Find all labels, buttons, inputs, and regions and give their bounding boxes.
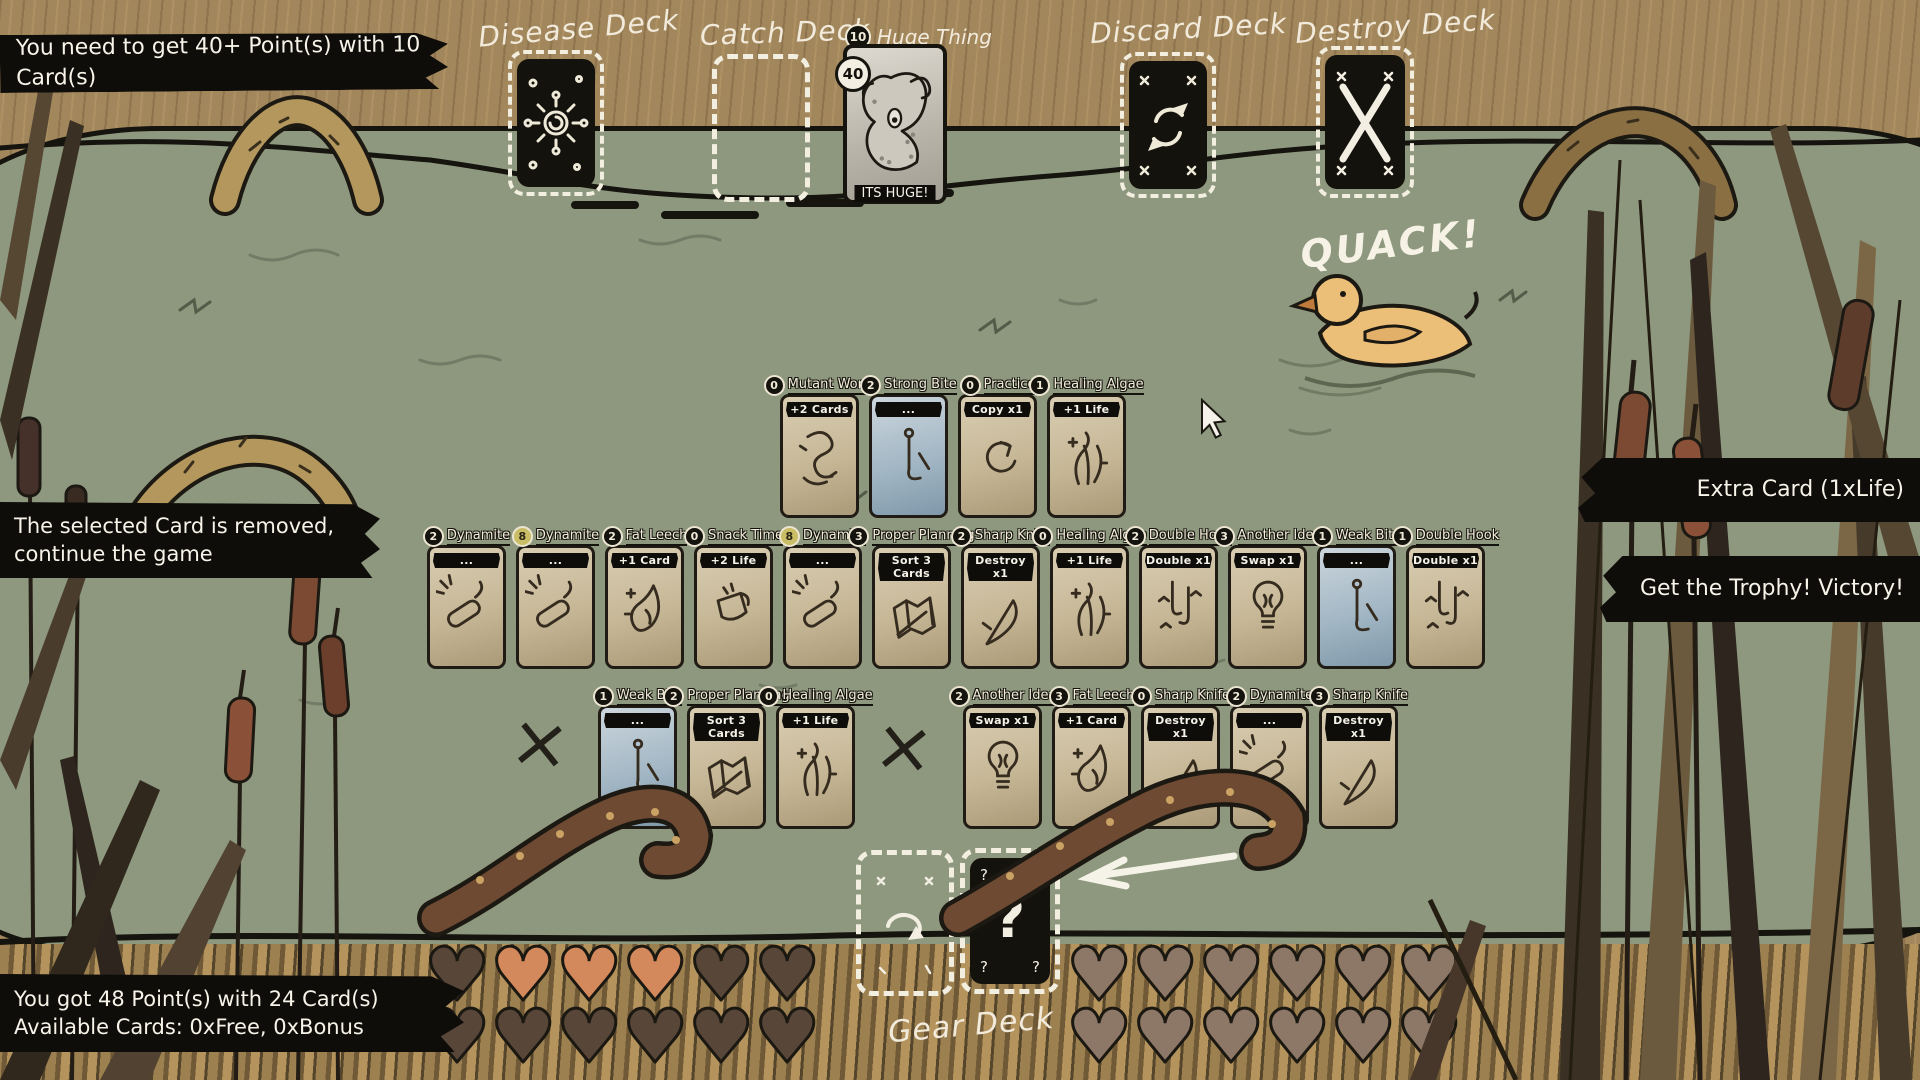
card-value-badge: 2	[1125, 526, 1146, 547]
card-effect: Double x1	[1145, 553, 1212, 568]
card-value-badge: 3	[848, 526, 869, 547]
card-dynamite[interactable]: 2Dynamite...	[1230, 705, 1309, 829]
destroy-deck-label: Destroy Deck	[1294, 3, 1497, 50]
card-effect: Destroy x1	[1325, 713, 1392, 741]
card-value-badge: 2	[1226, 686, 1247, 707]
life-hearts-right: ♥♥♥♥♥♥♥♥♥♥♥♥	[1066, 946, 1462, 1070]
available-text: Available Cards: 0xFree, 0xBonus	[14, 1013, 464, 1041]
card-strong-bite[interactable]: 2Strong Bite...	[869, 394, 948, 518]
card-sharp-knife[interactable]: 2Sharp KnifeDestroy x1	[961, 545, 1040, 669]
card-body: Sort 3 Cards	[687, 705, 766, 829]
victory-banner: Get the Trophy! Victory!	[1600, 556, 1920, 622]
card-body: +1 Card	[605, 545, 684, 669]
card-fat-leech[interactable]: 3Fat Leech+1 Card	[1052, 705, 1131, 829]
card-name: Sharp Knife	[1333, 688, 1408, 706]
removed-line2: continue the game	[14, 540, 380, 568]
removed-line1: The selected Card is removed,	[14, 512, 380, 540]
card-art-snack	[703, 572, 765, 656]
card-mutant-worm[interactable]: 0Mutant Worm+2 Cards	[780, 394, 859, 518]
heart-dark: ♥	[556, 1008, 622, 1070]
card-body: ...	[598, 705, 677, 829]
card-effect: ...	[604, 713, 671, 728]
card-body: ...	[427, 545, 506, 669]
recycle-icon	[866, 860, 944, 986]
card-body: Destroy x1	[961, 545, 1040, 669]
card-art-hook	[607, 732, 669, 816]
card-name: Healing Algae	[1053, 377, 1143, 395]
discard-deck-label: Discard Deck	[1089, 7, 1288, 50]
card-value-badge: 3	[1049, 686, 1070, 707]
card-effect: +1 Card	[611, 553, 678, 568]
card-art-bulb	[972, 732, 1034, 816]
card-body: +2 Life	[694, 545, 773, 669]
card-body: +1 Card	[1052, 705, 1131, 829]
card-effect: ...	[875, 402, 942, 417]
card-healing-algae[interactable]: 0Healing Algae+1 Life	[776, 705, 855, 829]
card-value-badge: 0	[1032, 526, 1053, 547]
card-art-map	[696, 745, 758, 829]
card-body: ...	[869, 394, 948, 518]
card-fat-leech[interactable]: 2Fat Leech+1 Card	[605, 545, 684, 669]
heart-light: ♥	[1396, 1008, 1462, 1070]
card-value-badge: 8	[512, 526, 533, 547]
card-value-badge: 1	[1029, 375, 1050, 396]
card-effect: +2 Cards	[786, 402, 853, 417]
bottom-right-row: 2Another IdeaSwap x13Fat Leech+1 Card0Sh…	[963, 705, 1398, 829]
card-body: Double x1	[1139, 545, 1218, 669]
card-sharp-knife[interactable]: 0Sharp KnifeDestroy x1	[1141, 705, 1220, 829]
card-effect: Swap x1	[1234, 553, 1301, 568]
card-sharp-knife[interactable]: 3Sharp KnifeDestroy x1	[1319, 705, 1398, 829]
goal-banner: You need to get 40+ Point(s) with 10 Car…	[0, 31, 448, 93]
card-value-badge: 2	[949, 686, 970, 707]
card-value-badge: 0	[758, 686, 779, 707]
card-effect: ...	[433, 553, 500, 568]
catch-deck-slot[interactable]	[712, 54, 810, 202]
card-name: Practice	[984, 377, 1036, 395]
card-body: +1 Life	[1047, 394, 1126, 518]
card-effect: Sort 3 Cards	[878, 553, 945, 581]
card-name: Dynamite	[447, 528, 510, 546]
card-healing-algae[interactable]: 0Healing Algae+1 Life	[1050, 545, 1129, 669]
card-art-worm	[789, 421, 851, 505]
card-effect: +1 Life	[1053, 402, 1120, 417]
card-value-badge: 2	[951, 526, 972, 547]
extra-card-text: Extra Card (1xLife)	[1697, 475, 1904, 505]
card-art-knife	[970, 585, 1032, 669]
card-effect: +1 Life	[782, 713, 849, 728]
x-mark-right: ×	[870, 707, 938, 785]
card-weak-bite[interactable]: 1Weak Bite...	[598, 705, 677, 829]
hand-row: 0Mutant Worm+2 Cards2Strong Bite...0Prac…	[780, 394, 1126, 518]
card-art-knife	[1328, 745, 1390, 829]
card-body: ...	[1230, 705, 1309, 829]
card-art-algae	[785, 732, 847, 816]
card-art-leech	[614, 572, 676, 656]
card-value-badge: 2	[423, 526, 444, 547]
card-art-dynamite	[792, 572, 854, 656]
card-effect: +1 Card	[1058, 713, 1125, 728]
card-art-copy	[967, 421, 1029, 505]
card-art-leech	[1061, 732, 1123, 816]
card-effect: Destroy x1	[967, 553, 1034, 581]
card-effect: +1 Life	[1056, 553, 1123, 568]
heart-dark: ♥	[754, 1008, 820, 1070]
extra-card-banner: Extra Card (1xLife)	[1578, 458, 1920, 522]
discard-icon	[1129, 61, 1207, 189]
gear-deck-slot[interactable]	[856, 850, 954, 996]
goal-text: You need to get 40+ Point(s) with 10 Car…	[16, 30, 449, 93]
card-body: Sort 3 Cards	[872, 545, 951, 669]
heart-light: ♥	[1264, 1008, 1330, 1070]
card-art-dynamite	[1239, 732, 1301, 816]
heart-dark: ♥	[688, 1008, 754, 1070]
card-another-idea[interactable]: 2Another IdeaSwap x1	[963, 705, 1042, 829]
card-value-badge: 3	[1309, 686, 1330, 707]
disease-icon	[517, 59, 595, 187]
card-effect: ...	[789, 553, 856, 568]
heart-dark: ♥	[490, 1008, 556, 1070]
life-hearts-left: ♥♥♥♥♥♥♥♥♥♥♥♥	[424, 946, 820, 1070]
card-effect: ...	[522, 553, 589, 568]
score-text: You got 48 Point(s) with 24 Card(s)	[14, 985, 464, 1013]
score-banner: You got 48 Point(s) with 24 Card(s) Avai…	[0, 974, 464, 1052]
card-body: Destroy x1	[1141, 705, 1220, 829]
card-art-dynamite	[525, 572, 587, 656]
card-value-badge: 1	[1392, 526, 1413, 547]
card-effect: ...	[1236, 713, 1303, 728]
card-body: ...	[516, 545, 595, 669]
huge-caption: ITS HUGE!	[855, 185, 936, 202]
destroy-deck[interactable]	[1316, 46, 1414, 198]
removed-banner: The selected Card is removed, continue t…	[0, 502, 380, 578]
card-value-badge: 2	[663, 686, 684, 707]
card-effect: Copy x1	[964, 402, 1031, 417]
card-body: +1 Life	[776, 705, 855, 829]
card-value-badge: 3	[1214, 526, 1235, 547]
card-body: Swap x1	[1228, 545, 1307, 669]
x-mark-left: ×	[506, 703, 574, 781]
card-value-badge: 0	[684, 526, 705, 547]
card-art-algae	[1056, 421, 1118, 505]
card-title: 1Healing Algae	[1033, 375, 1140, 396]
card-double-hook[interactable]: 1Double HookDouble x1	[1406, 545, 1485, 669]
huge-points-badge: 40	[835, 56, 871, 92]
heart-dark: ♥	[622, 1008, 688, 1070]
card-name: Fat Leech	[1073, 688, 1135, 706]
card-name: Healing Algae	[782, 688, 872, 706]
card-effect: Sort 3 Cards	[693, 713, 760, 741]
gear-question-mark: ?	[994, 887, 1025, 950]
card-value-badge: 0	[1131, 686, 1152, 707]
card-value-badge: 0	[960, 375, 981, 396]
card-name: Double Hook	[1416, 528, 1499, 546]
discard-deck[interactable]	[1120, 52, 1216, 198]
card-name: Dynamite	[1250, 688, 1313, 706]
card-dynamite[interactable]: 8Dynamite...	[783, 545, 862, 669]
card-healing-algae[interactable]: 1Healing Algae+1 Life	[1047, 394, 1126, 518]
card-art-map	[881, 585, 943, 669]
card-effect: Double x1	[1412, 553, 1479, 568]
victory-text: Get the Trophy! Victory!	[1640, 574, 1904, 604]
card-double-hook[interactable]: 2Double HookDouble x1	[1139, 545, 1218, 669]
card-title: 3Sharp Knife	[1305, 686, 1412, 707]
card-effect: Destroy x1	[1147, 713, 1214, 741]
heart-light: ♥	[1198, 1008, 1264, 1070]
card-effect: +2 Life	[700, 553, 767, 568]
card-art-hook	[1326, 572, 1388, 656]
card-dynamite[interactable]: 8Dynamite...	[516, 545, 595, 669]
gear-arrow	[1072, 846, 1242, 896]
bottom-left-row: 1Weak Bite...2Proper PlanningSort 3 Card…	[598, 705, 855, 829]
card-weak-bite[interactable]: 1Weak Bite...	[1317, 545, 1396, 669]
card-value-badge: 2	[860, 375, 881, 396]
card-body: ...	[1317, 545, 1396, 669]
heart-light: ♥	[1330, 1008, 1396, 1070]
river-row: 2Dynamite...8Dynamite...2Fat Leech+1 Car…	[427, 545, 1485, 669]
card-value-badge: 2	[602, 526, 623, 547]
card-art-doublehook	[1148, 572, 1210, 656]
card-body: Double x1	[1406, 545, 1485, 669]
huge-thing-card[interactable]: 40 ITS HUGE!	[843, 44, 947, 204]
card-art-dynamite	[436, 572, 498, 656]
card-effect: ...	[1323, 553, 1390, 568]
card-art-hook	[878, 421, 940, 505]
card-body: +1 Life	[1050, 545, 1129, 669]
card-body: Swap x1	[963, 705, 1042, 829]
card-name: Dynamite	[536, 528, 599, 546]
card-art-bulb	[1237, 572, 1299, 656]
card-art-algae	[1059, 572, 1121, 656]
heart-light: ♥	[1066, 1008, 1132, 1070]
destroy-x-icon	[1325, 55, 1405, 189]
card-title: 0Healing Algae	[762, 686, 869, 707]
card-proper-planning[interactable]: 2Proper PlanningSort 3 Cards	[687, 705, 766, 829]
card-body: +2 Cards	[780, 394, 859, 518]
card-value-badge: 1	[1312, 526, 1333, 547]
heart-light: ♥	[1132, 1008, 1198, 1070]
card-body: ...	[783, 545, 862, 669]
card-value-badge: 8	[779, 526, 800, 547]
card-art-doublehook	[1415, 572, 1477, 656]
card-dynamite[interactable]: 2Dynamite...	[427, 545, 506, 669]
card-proper-planning[interactable]: 3Proper PlanningSort 3 Cards	[872, 545, 951, 669]
card-value-badge: 0	[764, 375, 785, 396]
card-body: Destroy x1	[1319, 705, 1398, 829]
card-practice[interactable]: 0PracticeCopy x1	[958, 394, 1037, 518]
card-title: 1Double Hook	[1392, 526, 1499, 547]
card-name: Fat Leech	[626, 528, 688, 546]
disease-deck[interactable]	[508, 50, 604, 196]
gear-deck[interactable]: ? ? ? ? ?	[960, 848, 1060, 994]
card-snack-time[interactable]: 0Snack Time+2 Life	[694, 545, 773, 669]
card-another-idea[interactable]: 3Another IdeaSwap x1	[1228, 545, 1307, 669]
card-art-knife	[1150, 745, 1212, 829]
disease-deck-label: Disease Deck	[477, 3, 681, 53]
card-effect: Swap x1	[969, 713, 1036, 728]
card-body: Copy x1	[958, 394, 1037, 518]
card-value-badge: 1	[593, 686, 614, 707]
